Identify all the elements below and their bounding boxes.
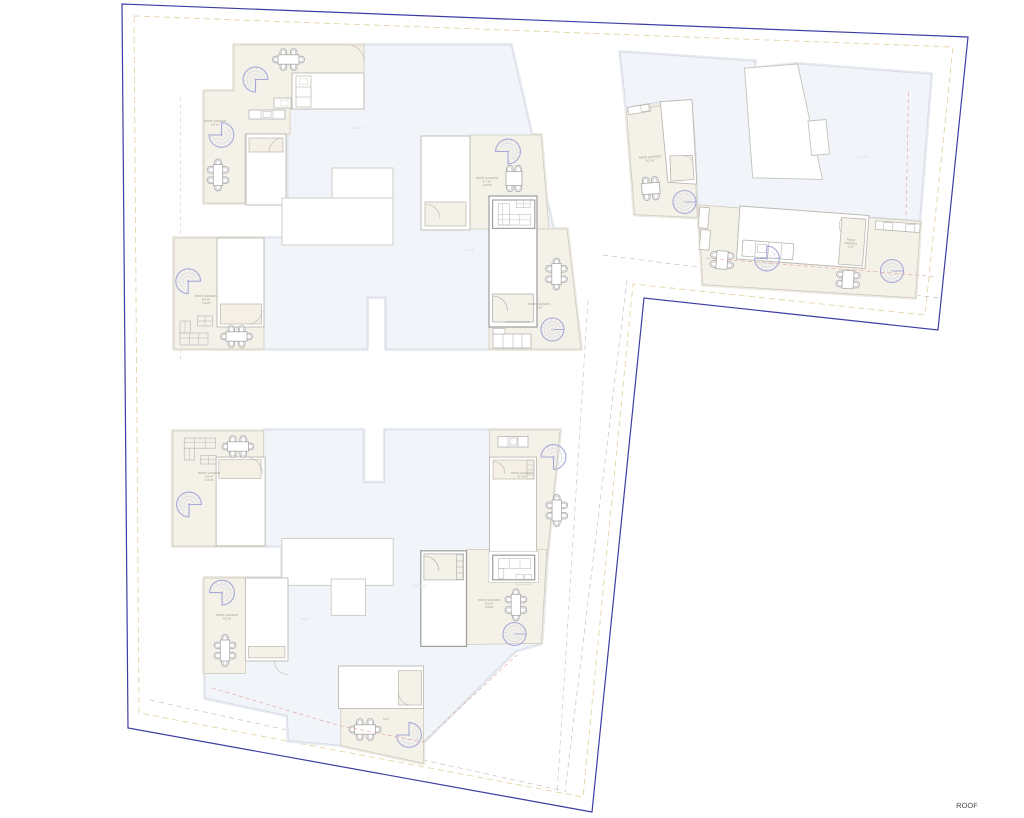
svg-text:ROOF: ROOF [956, 801, 978, 810]
svg-text:+173.6 m²: +173.6 m² [350, 126, 364, 130]
svg-text:173.6: 173.6 [466, 248, 474, 252]
svg-text:+162.4 m²: +162.4 m² [412, 584, 426, 588]
svg-text:162.4: 162.4 [301, 617, 309, 621]
svg-text:161.6 m²: 161.6 m² [856, 155, 869, 159]
svg-text:3 m²: 3 m² [383, 717, 389, 721]
